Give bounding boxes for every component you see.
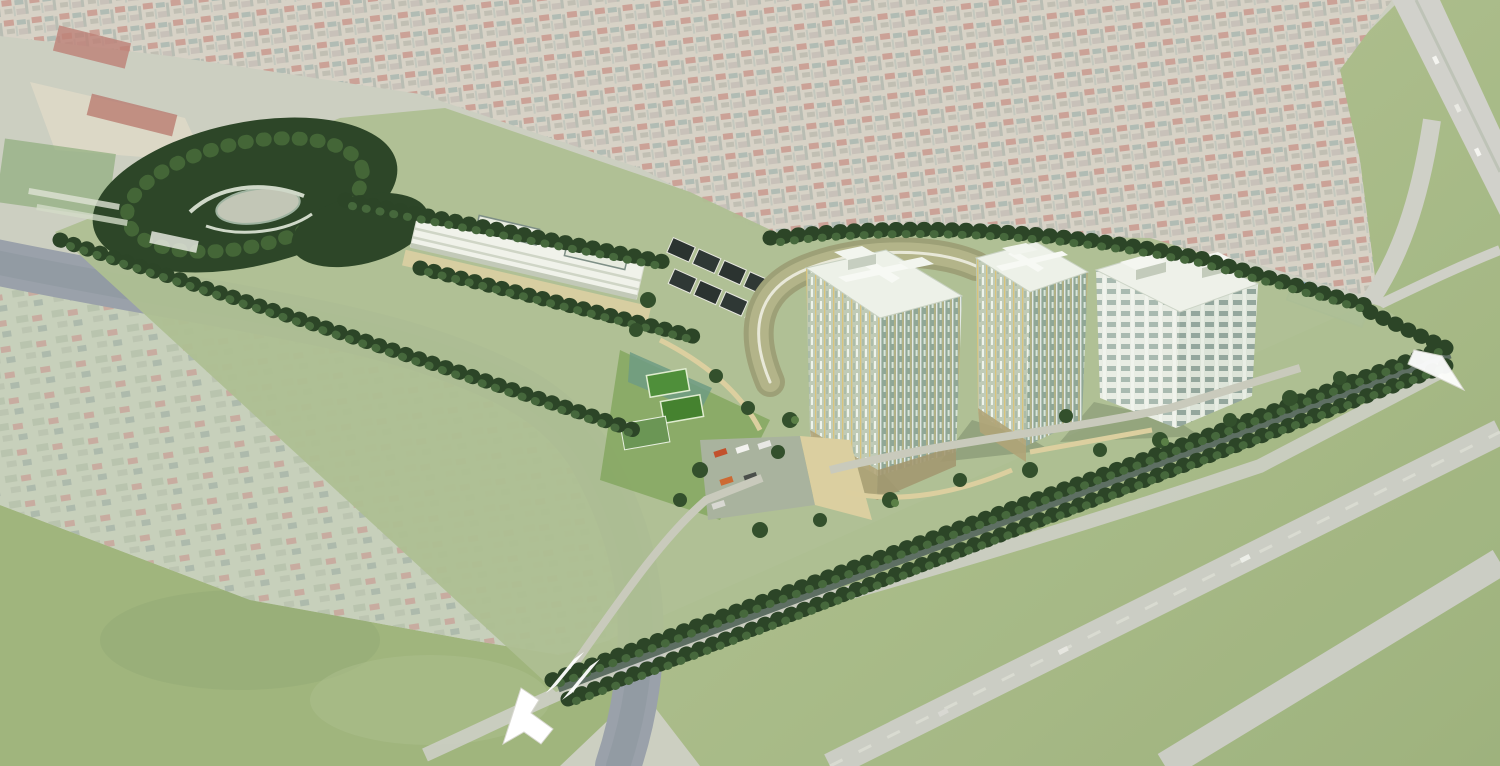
parking-lot: surface parking lot with cars and beige … [700, 436, 872, 520]
scene-svg: aerial master-plan rendering [0, 0, 1500, 766]
aerial-rendering: aerial master-plan rendering [0, 0, 1500, 766]
slab-building: white slab apartment building with rooft… [1096, 246, 1258, 428]
